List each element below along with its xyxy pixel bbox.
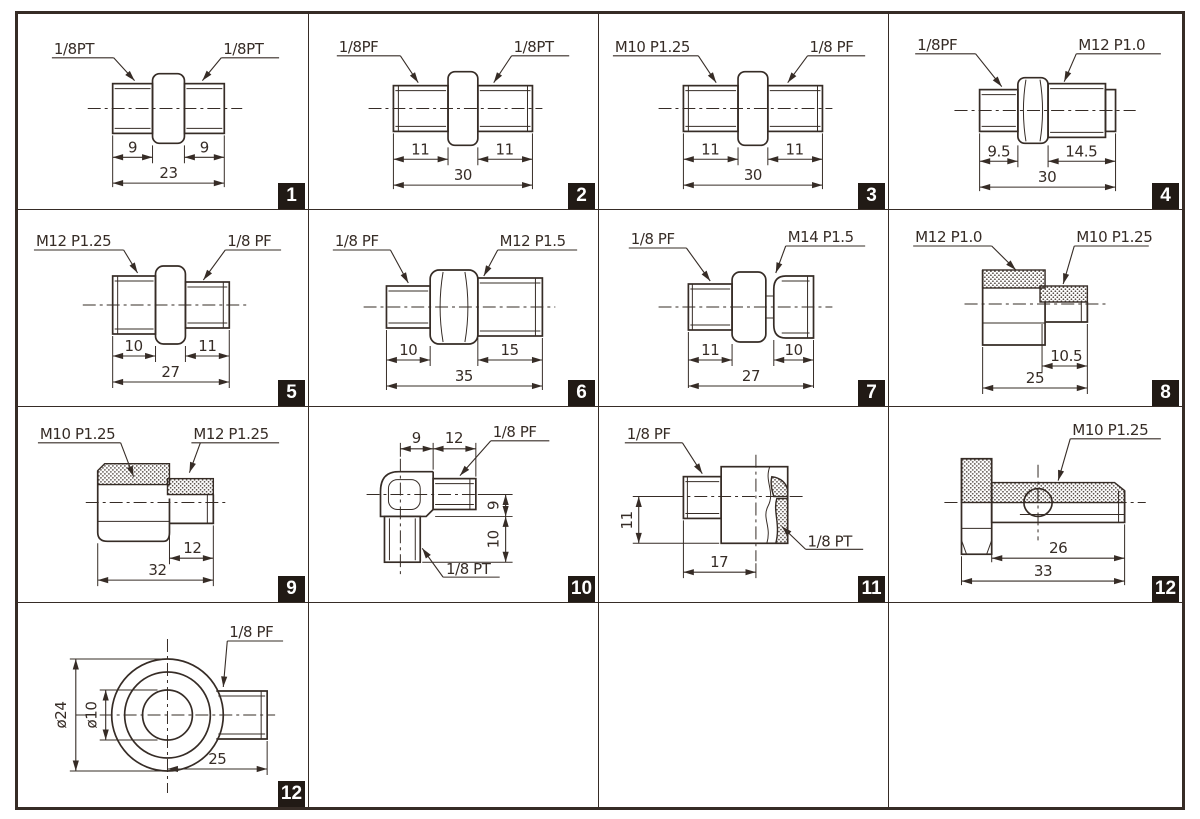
drawing-adapter-6: 1/8 PF M12 P1.5 10 15 35 [309, 210, 598, 406]
thread-label-right: M12 P1.5 [500, 232, 566, 250]
thread-label-left: 1/8 PF [335, 232, 379, 250]
item-number-badge: 3 [858, 183, 885, 209]
empty-cell [889, 603, 1182, 807]
dim-total: 35 [455, 367, 473, 385]
drawing-adapter-9: M10 P1.25 M12 P1.25 12 32 [18, 407, 308, 602]
item-number-badge: 2 [568, 183, 595, 209]
drawing-adapter-4: 1/8PF M12 P1.0 9.5 14.5 30 [889, 14, 1182, 209]
left-knurl-band [983, 270, 1045, 288]
cell-8: M12 P1.0 M10 P1.25 10.5 25 8 [889, 210, 1182, 407]
dim-right: 12 [183, 539, 201, 557]
dim-total: 27 [161, 363, 179, 381]
cell-2: 1/8PF 1/8PT 11 11 30 2 [309, 14, 599, 210]
dim-total: 30 [744, 166, 762, 184]
dim-top2: 12 [445, 429, 463, 447]
dim-right: 10 [785, 341, 803, 359]
drawing-hex-nipple-3: M10 P1.25 1/8 PF 11 11 30 [599, 14, 888, 209]
drawing-hex-nipple-2: 1/8PF 1/8PT 11 11 30 [309, 14, 598, 209]
shank-knurl [992, 483, 1125, 503]
dim-total: 27 [742, 367, 760, 385]
dim-right: 15 [501, 341, 519, 359]
item-number-badge: 6 [568, 380, 595, 406]
dim-total: 32 [148, 561, 166, 579]
dim-side1: 9 [485, 501, 503, 510]
dim-left: 9 [128, 138, 137, 156]
empty-cell [309, 603, 599, 807]
right-outline [169, 495, 213, 524]
dim-right: 11 [496, 140, 514, 158]
empty-cell [599, 603, 889, 807]
thread-label-left: M10 P1.25 [40, 425, 115, 443]
section-band [776, 499, 788, 544]
cell-5: M12 P1.25 1/8 PF 10 11 27 5 [18, 210, 309, 407]
item-number-badge: 9 [278, 576, 305, 602]
thread-label-right: M14 P1.5 [788, 228, 854, 246]
thread-label: M10 P1.25 [1072, 421, 1148, 439]
thread-label-top: 1/8 PF [493, 423, 537, 441]
item-number-badge: 12 [278, 781, 305, 807]
thread-label-right: 1/8PT [223, 40, 264, 58]
fittings-table: 1/8PT 1/8PT 9 9 23 1 1/8PF 1 [15, 11, 1185, 810]
catalog-page: 1/8PT 1/8PT 9 9 23 1 1/8PF 1 [0, 0, 1200, 819]
thread-label-left: 1/8 PF [631, 230, 675, 248]
item-number-badge: 1 [278, 183, 305, 209]
drawing-fitting-11: 11 17 1/8 PF 1/8 PT [599, 407, 888, 602]
dim-inner: 26 [1049, 539, 1067, 557]
item-number-badge: 12 [1152, 576, 1179, 602]
dim-outer-dia: ø24 [52, 701, 70, 728]
dim-left: 9.5 [987, 142, 1010, 160]
item-number-badge: 7 [858, 380, 885, 406]
section-nose [771, 477, 788, 497]
cell-6: 1/8 PF M12 P1.5 10 15 35 6 [309, 210, 599, 407]
thread-label-left: M12 P1.0 [915, 228, 982, 246]
thread-label-left: 1/8PF [917, 36, 957, 54]
dim-total: 25 [1026, 369, 1044, 387]
thread-label-bottom: 1/8 PT [446, 560, 492, 578]
thread-label-left: 1/8PT [54, 40, 95, 58]
head-knurl [961, 459, 991, 503]
item-number-badge: 8 [1152, 380, 1179, 406]
item-number-badge: 4 [1152, 183, 1179, 209]
dim-left: 11 [411, 140, 429, 158]
thread-label: 1/8 PF [229, 623, 273, 641]
cell-9: M10 P1.25 M12 P1.25 12 32 9 [18, 407, 309, 603]
cell-7: 1/8 PF M14 P1.5 11 10 27 7 [599, 210, 889, 407]
cell-1: 1/8PT 1/8PT 9 9 23 1 [18, 14, 309, 210]
dim-left: 10 [124, 337, 142, 355]
thread-label-right: 1/8PT [514, 38, 555, 56]
drawing-banjo-eye-13: 1/8 PF ø24 ø10 25 [18, 603, 308, 807]
dim-top1: 9 [412, 429, 421, 447]
thread-label-right: M12 P1.0 [1078, 36, 1145, 54]
dim-length: 25 [208, 750, 226, 768]
dim-left: 11 [701, 140, 719, 158]
thread-label-left: M10 P1.25 [615, 38, 690, 56]
dim-total: 30 [454, 166, 472, 184]
dim-bore-dia: ø10 [83, 701, 101, 728]
cell-10: 9 12 9 10 1/8 PF 1/8 PT 10 [309, 407, 599, 603]
drawing-adapter-8: M12 P1.0 M10 P1.25 10.5 25 [889, 210, 1182, 406]
drawing-elbow-10: 9 12 9 10 1/8 PF 1/8 PT [309, 407, 598, 602]
thread-label-right: M10 P1.25 [1076, 228, 1152, 246]
drawing-hex-nipple-1: 1/8PT 1/8PT 9 9 23 [18, 14, 308, 209]
thread-label-right: 1/8 PF [810, 38, 854, 56]
drawing-adapter-7: 1/8 PF M14 P1.5 11 10 27 [599, 210, 888, 406]
thread-label-left: M12 P1.25 [36, 232, 111, 250]
dim-right: 9 [200, 138, 209, 156]
dim-height: 11 [618, 511, 636, 529]
cell-13: 1/8 PF ø24 ø10 25 12 [18, 603, 309, 807]
cell-11: 11 17 1/8 PF 1/8 PT 11 [599, 407, 889, 603]
cell-12: M10 P1.25 26 33 12 [889, 407, 1182, 603]
left-port [683, 477, 721, 519]
left-knurl-band [98, 464, 170, 485]
drawing-adapter-5: M12 P1.25 1/8 PF 10 11 27 [18, 210, 308, 406]
break-line [766, 467, 771, 544]
item-number-badge: 5 [278, 380, 305, 406]
right-knurl-band [1040, 286, 1087, 302]
dim-right: 14.5 [1065, 142, 1097, 160]
thread-label-right: M12 P1.25 [193, 425, 268, 443]
item-number-badge: 10 [568, 576, 595, 602]
cell-4: 1/8PF M12 P1.0 9.5 14.5 30 4 [889, 14, 1182, 210]
drawing-banjo-bolt-12: M10 P1.25 26 33 [889, 407, 1182, 602]
cell-3: M10 P1.25 1/8 PF 11 11 30 3 [599, 14, 889, 210]
dim-left: 11 [701, 341, 719, 359]
dim-total: 33 [1034, 562, 1052, 580]
dim-total: 23 [159, 164, 177, 182]
dim-right: 11 [786, 140, 804, 158]
dim-right: 10.5 [1050, 347, 1082, 365]
dim-side2: 10 [485, 530, 503, 548]
item-number-badge: 11 [858, 576, 885, 602]
thread-label-left: 1/8 PF [627, 425, 671, 443]
dim-total: 30 [1038, 168, 1056, 186]
right-knurl-band [167, 479, 213, 495]
dim-left: 10 [399, 341, 417, 359]
thread-label-left: 1/8PF [339, 38, 379, 56]
thread-label-right: 1/8 PF [227, 232, 271, 250]
thread-label-right: 1/8 PT [808, 532, 854, 550]
dim-width: 17 [710, 553, 728, 571]
dim-right: 11 [198, 337, 216, 355]
